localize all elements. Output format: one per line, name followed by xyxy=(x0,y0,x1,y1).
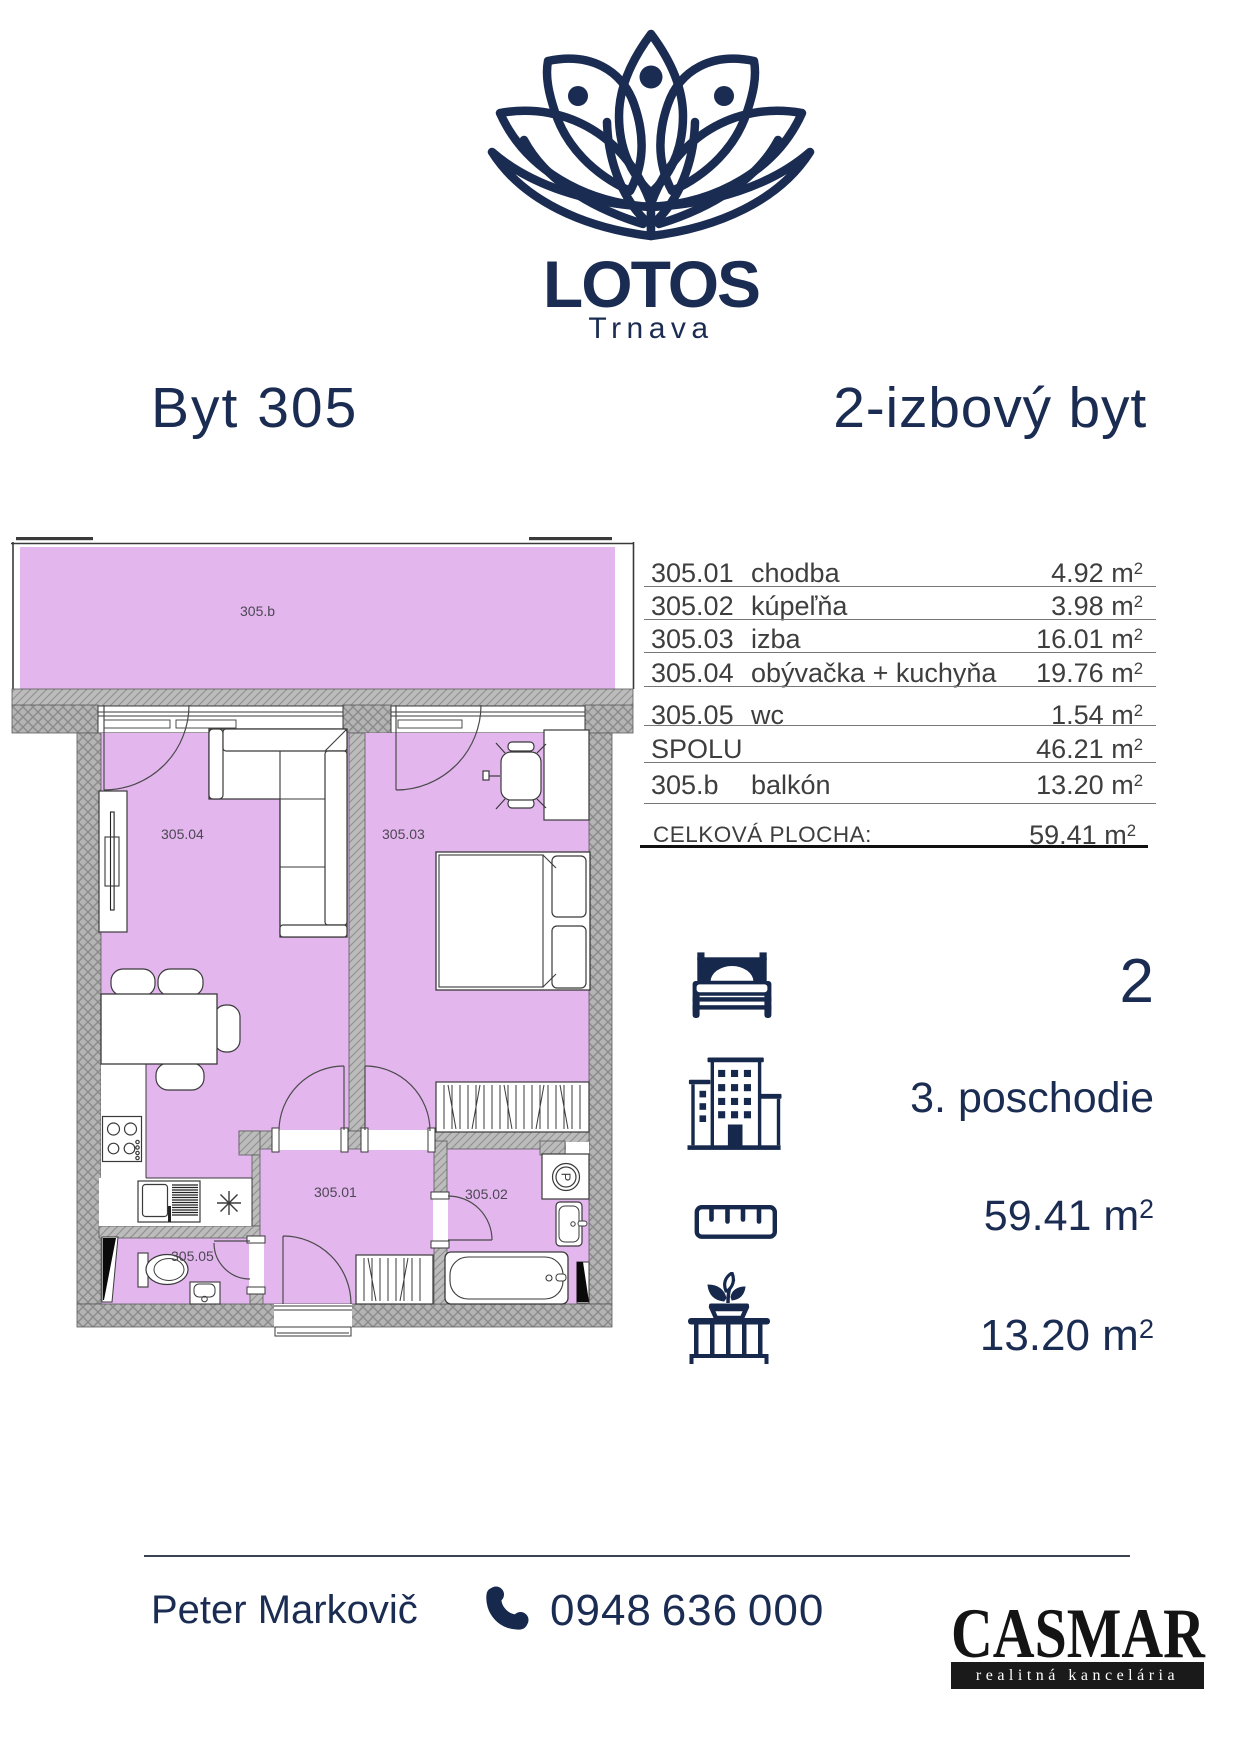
svg-text:305.02: 305.02 xyxy=(465,1186,508,1202)
svg-text:305.01: 305.01 xyxy=(314,1184,357,1200)
svg-text:305.b: 305.b xyxy=(240,603,275,619)
svg-text:305.04: 305.04 xyxy=(161,826,204,842)
svg-text:305.05: 305.05 xyxy=(171,1248,214,1264)
svg-text:P: P xyxy=(559,1173,574,1182)
svg-text:305.03: 305.03 xyxy=(382,826,425,842)
